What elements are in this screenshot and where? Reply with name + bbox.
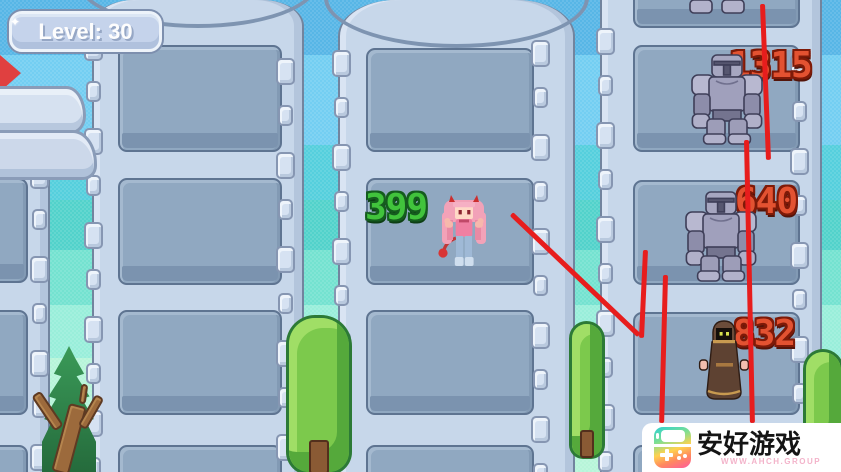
rivet [596,122,615,149]
rivet [32,303,47,324]
watermark-title: 安好游戏 [697,424,801,461]
rivet [790,242,809,269]
player-power: 399 [365,190,427,226]
level-label: Level: 30 [38,19,132,45]
tower-arch [324,0,589,48]
rivet [596,216,615,243]
rivet [792,101,807,122]
window [366,445,534,472]
rivet [531,322,550,349]
rivet [598,263,613,284]
rivet [598,169,613,190]
rivet [533,275,548,296]
turret-base [0,130,97,180]
rivet [84,316,103,343]
rivet [276,152,295,179]
rivet [86,269,101,290]
rivet [30,256,49,283]
rivet [276,246,295,273]
watermark-subtitle: WWW.AHCH.GROUP [721,457,821,466]
hooded-monk-sprite[interactable] [698,318,750,411]
window [118,45,282,152]
window [118,178,282,285]
window [366,310,534,415]
rivet [30,350,49,377]
window [366,48,534,152]
rivet [278,293,293,314]
rivet [332,238,351,265]
rivet [278,199,293,220]
game-stage: 399 [0,0,841,472]
rivet [276,58,295,85]
rivet [533,369,548,390]
rivet [32,209,47,230]
rivet [598,75,613,96]
window [0,445,28,472]
rivet [531,416,550,443]
player-demon-girl-sprite[interactable] [434,194,494,275]
rivet [790,148,809,175]
rivet [533,87,548,108]
bush-tree [289,318,349,472]
handheld-console-icon [654,427,691,468]
rivet [533,463,548,472]
sparkle-icon: ✦ [10,15,20,29]
rivet [334,285,349,306]
rivet [598,451,613,472]
rivet [334,97,349,118]
rivet [792,383,807,404]
dead-branch-tree [34,388,118,472]
rivet [792,289,807,310]
rivet [332,50,351,77]
rivet [533,181,548,202]
window [0,178,28,283]
rivet [596,28,615,55]
rivet [334,191,349,212]
rivet [84,222,103,249]
turret-dome [0,86,86,134]
rivet [86,363,101,384]
rivet [531,40,550,67]
golem-feet-sprite [688,0,746,19]
window [118,445,282,472]
rivet [531,134,550,161]
window [118,310,282,415]
rivet [86,81,101,102]
window [0,310,28,415]
rivet [278,105,293,126]
rivet [332,144,351,171]
bush-tree [572,324,602,456]
watermark: 安好游戏 WWW.AHCH.GROUP [642,423,841,472]
level-badge: Level: 30 [9,11,162,52]
stone-golem-sprite[interactable] [690,53,764,150]
